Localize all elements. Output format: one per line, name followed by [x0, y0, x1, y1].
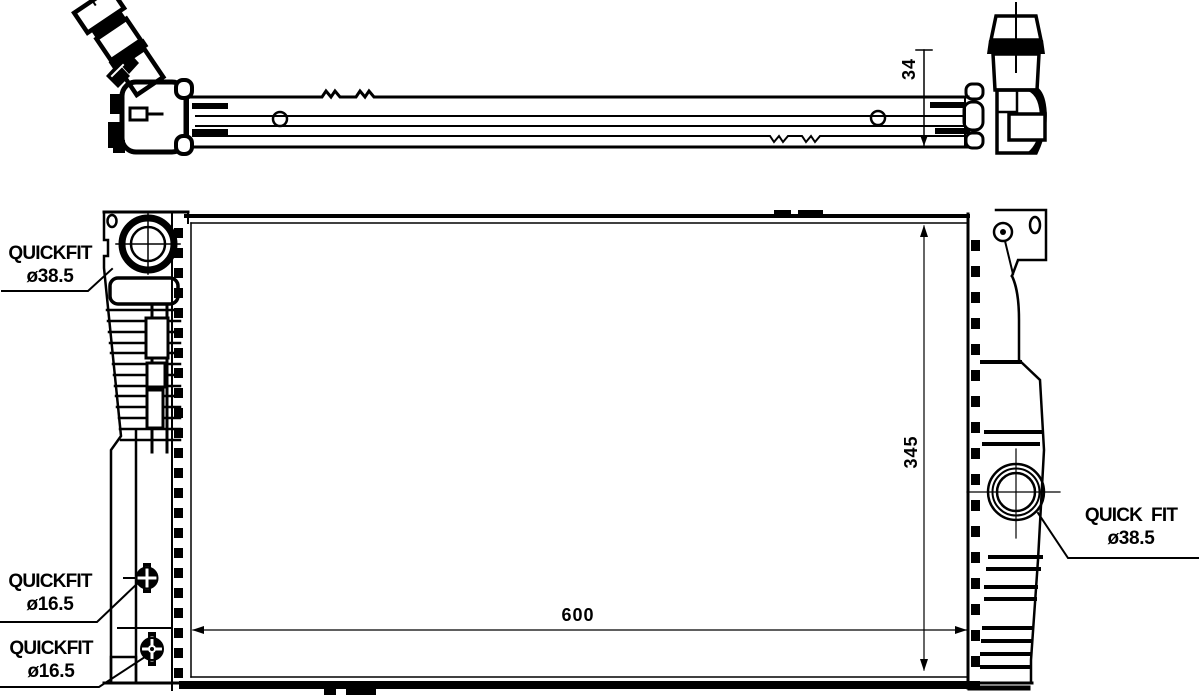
inlet-connector-top-view [70, 0, 192, 154]
label-quickfit-16-lower: QUICKFIT ø16.5 [0, 637, 102, 683]
drawing-lineart [0, 0, 1200, 695]
label-quickfit-38-right-size: ø38.5 [1062, 527, 1200, 550]
outlet-port-16-lower [141, 632, 163, 666]
label-quickfit-16-upper-name: QUICKFIT [0, 570, 100, 593]
label-quickfit-16-lower-name: QUICKFIT [0, 637, 102, 660]
right-tank-notch-strip [971, 240, 980, 667]
mount-hole-left [108, 215, 117, 227]
right-mounting-bracket [994, 210, 1046, 276]
filler-neck-top-view [964, 3, 1045, 153]
radiator-technical-drawing: QUICKFIT ø38.5 QUICKFIT ø16.5 QUICKFIT ø… [0, 0, 1200, 695]
dimension-text-345: 345 [901, 422, 923, 482]
label-quickfit-16-upper: QUICKFIT ø16.5 [0, 570, 100, 616]
dimension-text-600: 600 [538, 605, 618, 627]
label-quickfit-16-lower-size: ø16.5 [0, 660, 102, 683]
right-tank [967, 210, 1060, 688]
label-quickfit-38-left-name: QUICKFIT [0, 242, 100, 265]
dimension-text-34: 34 [899, 49, 921, 89]
outlet-port-16-upper [124, 563, 158, 593]
label-quickfit-38-left: QUICKFIT ø38.5 [0, 242, 100, 288]
label-quickfit-38-right: QUICK FIT ø38.5 [1062, 504, 1200, 550]
label-quickfit-38-left-size: ø38.5 [0, 265, 100, 288]
label-quickfit-38-right-name: QUICK FIT [1062, 504, 1200, 527]
strip-hole-left [273, 112, 287, 126]
label-quickfit-16-upper-size: ø16.5 [0, 593, 100, 616]
dimension-600 [192, 626, 967, 634]
inlet-port-38-left [116, 214, 180, 274]
left-tank [104, 212, 190, 690]
strip-hole-right [871, 111, 885, 125]
